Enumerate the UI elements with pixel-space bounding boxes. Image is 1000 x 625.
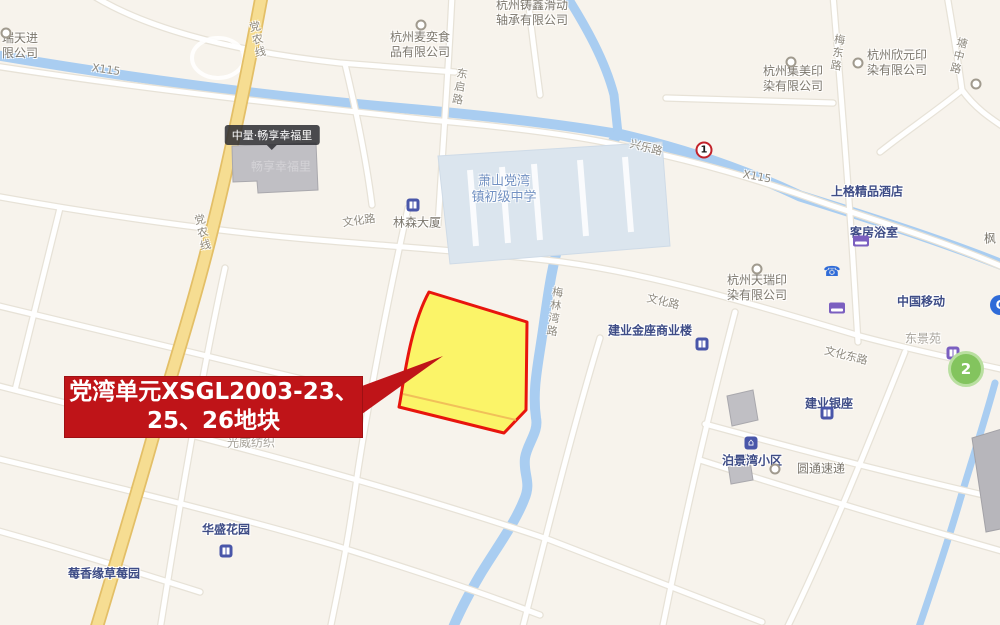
poi-label-zhuxin[interactable]: 杭州铸鑫滑动 轴承有限公司 — [496, 0, 568, 28]
poi-label-shangge-hotel[interactable]: 上格精品酒店 — [831, 185, 903, 200]
poi-dot-icon[interactable] — [971, 79, 982, 90]
poi-label-feng: 枫 — [984, 232, 996, 247]
poi-label-jinzuo[interactable]: 建业金座商业楼 — [608, 324, 692, 339]
road-point-badge[interactable]: 1 — [696, 142, 713, 159]
poi-dot-icon[interactable] — [752, 264, 763, 275]
poi-label-yuantong[interactable]: 圆通速递 — [797, 462, 845, 477]
highlighted-parcel[interactable] — [399, 292, 527, 433]
poi-label-maiyi[interactable]: 杭州麦奕食 品有限公司 — [390, 30, 450, 60]
building-icon[interactable] — [821, 407, 834, 420]
map-canvas[interactable]: 瑞天进 限公司 杭州铸鑫滑动 轴承有限公司 杭州麦奕食 品有限公司 杭州集美印 … — [0, 0, 1000, 625]
building-icon[interactable] — [696, 338, 709, 351]
parcel-callout: 党湾单元XSGL2003-23、 25、26地块 — [65, 377, 362, 437]
area-label-guangwei: 光威纺织 — [227, 436, 275, 451]
residence-badge-zhongliang[interactable]: 中量·畅享幸福里 — [225, 125, 320, 145]
metro-line-2-badge[interactable]: 2 — [948, 351, 984, 387]
poi-label-school[interactable]: 萧山党湾 镇初级中学 — [471, 174, 536, 207]
hotel-bed-icon[interactable] — [853, 236, 869, 247]
area-label-dongjingyuan: 东景苑 — [905, 332, 941, 347]
poi-dot-icon[interactable] — [1, 28, 12, 39]
poi-dot-icon[interactable] — [416, 20, 427, 31]
poi-label-huasheng[interactable]: 华盛花园 — [202, 523, 250, 538]
poi-label-yidong[interactable]: 中国移动 — [897, 295, 945, 310]
building-icon[interactable] — [220, 545, 233, 558]
map-graphics — [0, 0, 1000, 625]
poi-label-tianrui[interactable]: 杭州天瑞印 染有限公司 — [727, 273, 787, 303]
poi-label-meixiangyuan[interactable]: 莓香缘草莓园 — [68, 567, 140, 582]
building-icon[interactable] — [407, 199, 420, 212]
phone-icon[interactable]: ☎ — [823, 265, 840, 279]
parcel-callout-line2: 25、26地块 — [65, 407, 362, 436]
poi-dot-icon[interactable] — [786, 57, 797, 68]
poi-label-jimei[interactable]: 杭州集美印 染有限公司 — [763, 64, 823, 94]
poi-dot-icon[interactable] — [770, 464, 781, 475]
poi-dot-icon[interactable] — [853, 58, 864, 69]
hotel-bed-icon[interactable] — [829, 303, 845, 314]
poi-label-xinyuan[interactable]: 杭州欣元印 染有限公司 — [867, 48, 927, 78]
parcel-callout-line1: 党湾单元XSGL2003-23、 — [65, 378, 362, 407]
building-label-changxiang: 畅享幸福里 — [251, 160, 311, 175]
house-icon[interactable]: ⌂ — [745, 437, 758, 450]
poi-label-linsen[interactable]: 林森大厦 — [393, 216, 441, 231]
